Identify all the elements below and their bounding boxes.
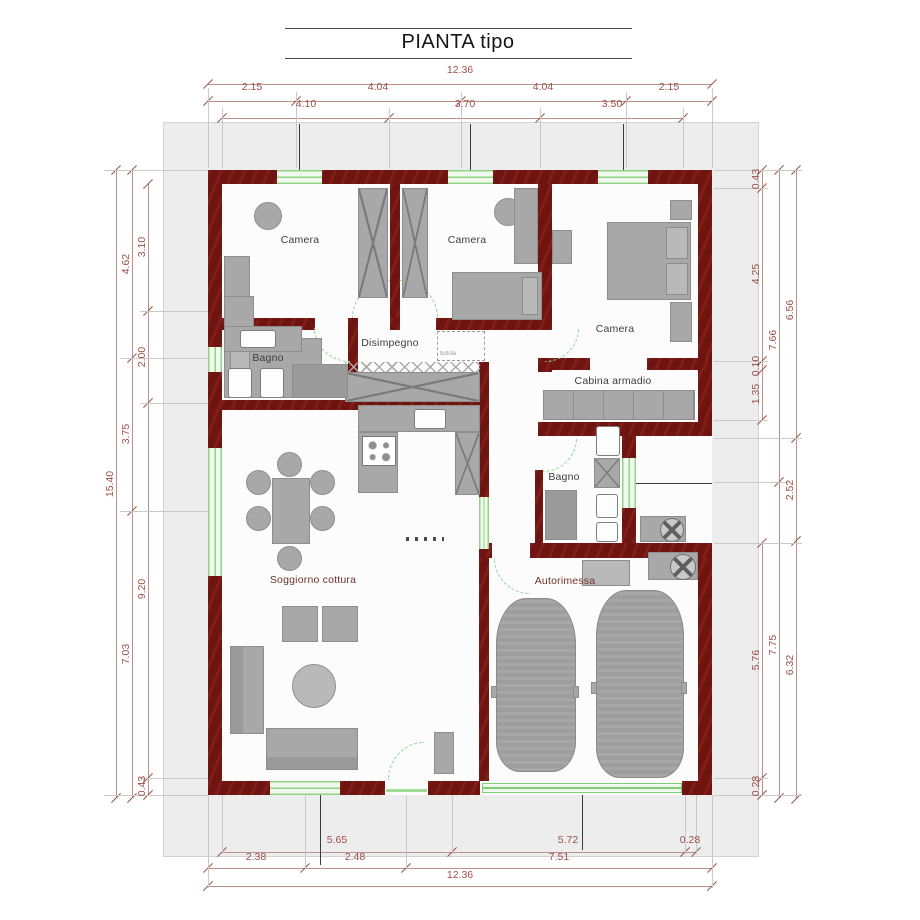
- dim-line: [208, 886, 712, 887]
- room-label: Disimpegno: [361, 337, 418, 349]
- bidet-symbol: [596, 522, 618, 542]
- wall-segment: [322, 170, 448, 184]
- rug-symbol: [292, 664, 336, 708]
- wall-segment: [208, 372, 222, 448]
- dim-line: [762, 543, 763, 795]
- dim-label: 4.25: [750, 264, 762, 284]
- closet-cabinet-row: [543, 390, 695, 420]
- chair-symbol: [310, 506, 335, 531]
- sofa-symbol: [230, 646, 264, 734]
- dim-label: 3.70: [455, 98, 475, 110]
- kitchen-tall-unit: [455, 432, 480, 495]
- room-label: Camera: [596, 323, 635, 335]
- window: [208, 347, 222, 372]
- hatch-label: botola: [440, 351, 456, 357]
- chair-symbol: [246, 470, 271, 495]
- kitchen-sink: [414, 409, 446, 429]
- wall-segment: [340, 781, 385, 795]
- dim-label: 12.36: [447, 64, 473, 76]
- title-rule-top: [285, 28, 632, 29]
- dim-label: 7.51: [549, 851, 569, 863]
- dresser-symbol: [552, 230, 572, 264]
- stove-symbol: [362, 436, 396, 466]
- wall-segment: [390, 184, 400, 318]
- room-label: Cabina armadio: [575, 375, 652, 387]
- dim-label: 0.43: [136, 776, 148, 796]
- washbasin-symbol: [240, 330, 276, 348]
- dim-label: 4.10: [296, 98, 316, 110]
- pillow-symbol: [522, 277, 538, 315]
- dim-label: 2.48: [345, 851, 365, 863]
- dim-label: 6.56: [784, 300, 796, 320]
- chair-symbol: [310, 470, 335, 495]
- wardrobe-symbol: [358, 188, 388, 298]
- window: [598, 170, 648, 184]
- dim-label: 2.52: [784, 480, 796, 500]
- room-label: Bagno: [252, 352, 283, 364]
- armchair-symbol: [322, 606, 358, 642]
- door-threshold: [386, 789, 427, 792]
- dim-label: 0.28: [680, 834, 700, 846]
- dim-line: [148, 184, 149, 795]
- washing-machine-symbol: [596, 426, 620, 456]
- boiler-fan-icon: [660, 518, 684, 542]
- dim-line: [132, 170, 133, 798]
- car-symbol: [496, 598, 576, 772]
- dim-line: [796, 170, 797, 799]
- dim-line: [779, 170, 780, 798]
- wall-segment: [479, 362, 489, 497]
- desk-chair-symbol: [254, 202, 282, 230]
- dim-label: 5.72: [558, 834, 578, 846]
- dining-table-symbol: [272, 478, 310, 544]
- car-mirror: [591, 682, 597, 694]
- room-label: Soggiorno cottura: [270, 574, 356, 586]
- nightstand-symbol: [670, 200, 692, 220]
- window: [208, 448, 222, 576]
- washbasin-symbol: [594, 458, 620, 488]
- dim-label: 4.04: [368, 81, 388, 93]
- dim-label: 5.65: [327, 834, 347, 846]
- garage-door: [482, 783, 682, 793]
- car-symbol: [596, 590, 684, 778]
- pillow-symbol: [666, 263, 688, 295]
- dim-label: 2.15: [659, 81, 679, 93]
- wall-segment: [535, 470, 543, 543]
- armchair-symbol: [282, 606, 318, 642]
- wall-segment: [647, 358, 712, 370]
- entry-step-line: [636, 483, 712, 484]
- shower-symbol: [292, 364, 348, 398]
- chair-symbol: [277, 452, 302, 477]
- pillow-symbol: [666, 227, 688, 259]
- interior-glass-door: [479, 497, 489, 549]
- dim-label: 2.00: [136, 347, 148, 367]
- dim-line: [208, 84, 712, 85]
- dim-line: [222, 118, 683, 119]
- car-mirror: [681, 682, 687, 694]
- bidet-symbol: [260, 368, 284, 398]
- room-label: Camera: [281, 234, 320, 246]
- wall-segment: [552, 358, 590, 370]
- dim-label: 3.10: [136, 237, 148, 257]
- wardrobe-symbol: [402, 188, 428, 298]
- dim-label: 6.32: [784, 655, 796, 675]
- floor-plan-drawing: PIANTA tipo: [0, 0, 920, 920]
- wall-segment: [538, 422, 712, 436]
- dim-line: [762, 170, 763, 420]
- dim-label: 7.66: [767, 330, 779, 350]
- dim-label: 0.28: [750, 776, 762, 796]
- dim-label: 15.40: [104, 471, 116, 497]
- wall-segment: [390, 318, 400, 330]
- wardrobe-symbol: [345, 372, 480, 402]
- dim-label: 4.62: [120, 254, 132, 274]
- window: [448, 170, 493, 184]
- dim-label: 4.04: [533, 81, 553, 93]
- wall-segment: [208, 576, 222, 795]
- wall-segment: [622, 436, 636, 458]
- shower-symbol: [545, 490, 577, 540]
- dim-label: 3.50: [602, 98, 622, 110]
- dim-label: 5.76: [750, 650, 762, 670]
- wall-segment: [428, 781, 480, 795]
- toilet-symbol: [228, 368, 252, 398]
- window: [270, 781, 340, 795]
- window: [622, 458, 636, 508]
- car-mirror: [491, 686, 497, 698]
- dim-line: [116, 170, 117, 798]
- dim-label: 2.38: [246, 851, 266, 863]
- dim-label: 9.20: [136, 579, 148, 599]
- step-marks: [406, 537, 444, 541]
- car-mirror: [573, 686, 579, 698]
- hanger-marks: [345, 362, 480, 372]
- room-label: Camera: [448, 234, 487, 246]
- dim-label: 0.10: [750, 356, 762, 376]
- nightstand-symbol: [670, 302, 692, 342]
- wall-segment: [698, 170, 712, 436]
- dim-label: 7.75: [767, 635, 779, 655]
- chair-symbol: [277, 546, 302, 571]
- room-label: Autorimessa: [535, 575, 596, 587]
- dim-label: 1.35: [750, 384, 762, 404]
- room-label: Bagno: [548, 471, 579, 483]
- dim-label: 7.03: [120, 644, 132, 664]
- desk-symbol: [514, 188, 538, 264]
- wall-segment: [479, 558, 489, 781]
- chair-symbol: [246, 506, 271, 531]
- title-rule-bottom: [285, 58, 632, 59]
- toilet-symbol: [596, 494, 618, 518]
- dim-line: [222, 852, 696, 853]
- wall-segment: [208, 170, 222, 347]
- dim-label: 0.43: [750, 169, 762, 189]
- dim-label: 12.36: [447, 869, 473, 881]
- sofa-symbol: [266, 728, 358, 770]
- window: [277, 170, 322, 184]
- dim-label: 2.15: [242, 81, 262, 93]
- wall-segment: [493, 170, 598, 184]
- cabinet-symbol: [434, 732, 454, 774]
- page-title: PIANTA tipo: [402, 31, 515, 54]
- wall-segment: [698, 543, 712, 795]
- boiler-fan-icon: [670, 554, 696, 580]
- wall-segment: [622, 508, 636, 543]
- dim-label: 3.75: [120, 424, 132, 444]
